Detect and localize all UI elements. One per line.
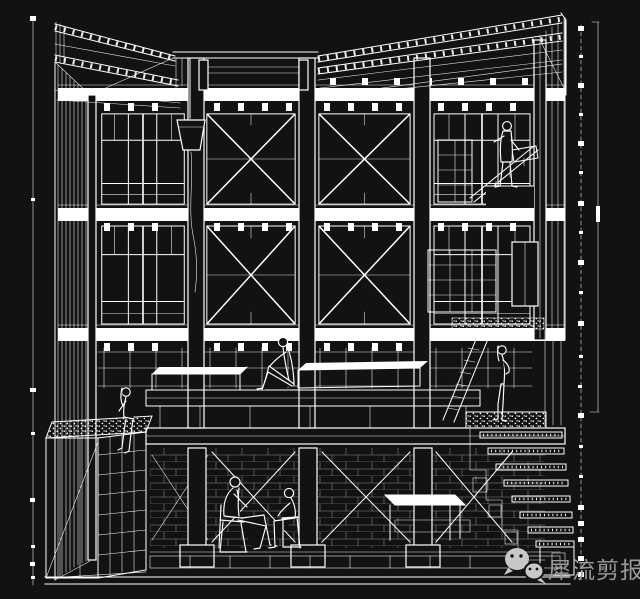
architectural-section-drawing: 犀流剪报	[0, 0, 640, 599]
watermark-account-name: 犀流剪报	[548, 558, 640, 584]
screenshot-canvas: 犀流剪报	[0, 0, 640, 599]
ground-slab	[146, 428, 565, 444]
